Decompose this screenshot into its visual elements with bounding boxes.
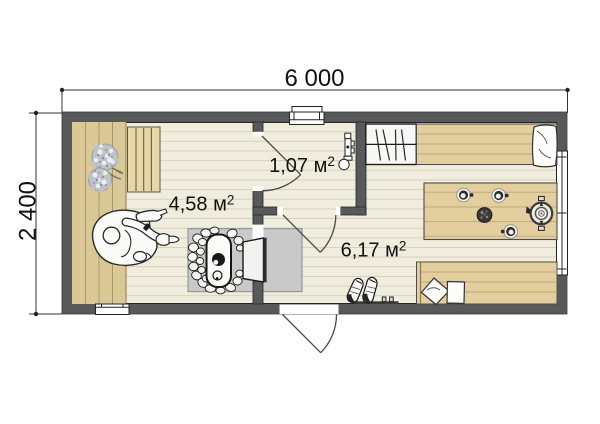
svg-text:2 400: 2 400 [15, 181, 42, 241]
svg-text:6 000: 6 000 [284, 65, 344, 92]
svg-text:4,58 м2: 4,58 м2 [169, 193, 235, 216]
svg-text:1,07 м2: 1,07 м2 [269, 154, 335, 177]
svg-text:6,17 м2: 6,17 м2 [341, 239, 407, 262]
